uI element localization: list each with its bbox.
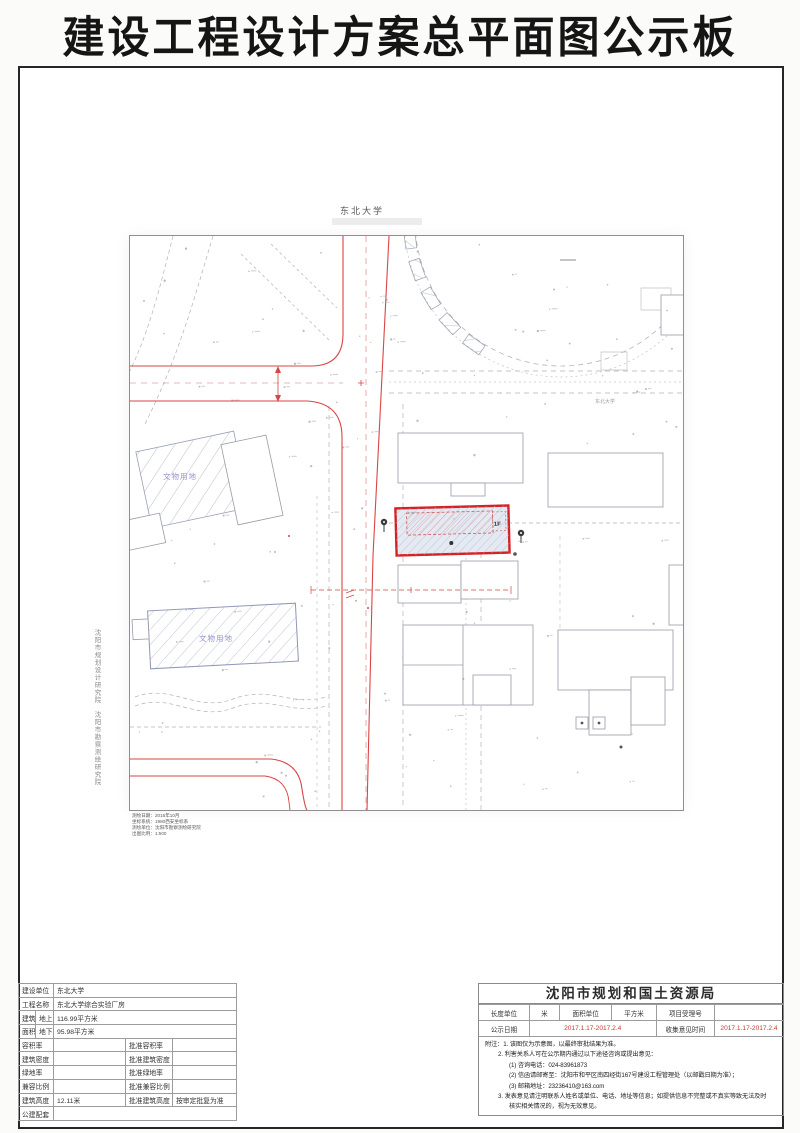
publicity-date-label-cell: 公示日期	[479, 1021, 529, 1037]
agency-panel: 沈阳市规划和国土资源局 长度单位 米 面积单位 平方米 项目受理号 公示日期 2…	[478, 983, 784, 1116]
above-ground-label-cell: 地上	[36, 1011, 54, 1025]
mix-approved-label-cell: 批准兼容比例	[126, 1079, 173, 1093]
far-approved-label-cell: 批准容积率	[126, 1038, 173, 1052]
project-value-cell: 东北大学综合实验厂房	[54, 997, 237, 1011]
collect-time-value-cell: 2017.1.17-2017.2.4	[715, 1021, 783, 1037]
table-row: 公建配套	[19, 1107, 237, 1121]
density-value-cell	[54, 1052, 126, 1066]
case-number-label-cell: 项目受理号	[656, 1005, 714, 1021]
table-row: 长度单位 米 面积单位 平方米 项目受理号	[479, 1005, 783, 1021]
density-label-cell: 建筑密度	[19, 1052, 54, 1066]
height-approved-value-cell: 按审定批复为准	[173, 1093, 237, 1107]
note-line: (2) 信函请邮寄至：沈阳市和平区南四经街167号建设工程管理处（以邮戳日期为准…	[485, 1071, 778, 1081]
area-unit-label-cell: 面积单位	[560, 1005, 612, 1021]
note-line: 附注：1. 该图仅为示意图，以最终审批结果为准。	[485, 1040, 778, 1050]
length-unit-label-cell: 长度单位	[479, 1005, 529, 1021]
agency-name: 沈阳市规划和国土资源局	[479, 984, 783, 1004]
far-label-cell: 容积率	[19, 1038, 54, 1052]
note-line: 3. 发表意见请注明联系人姓名或单位、电话、地址等信息；如提供信息不完整或不真实…	[485, 1092, 778, 1102]
note-line: 核实相关情况的，视为无效意见。	[485, 1102, 778, 1112]
public-facilities-label-cell: 公建配套	[19, 1107, 54, 1121]
length-unit-value-cell: 米	[529, 1005, 559, 1021]
far-value-cell	[54, 1038, 126, 1052]
project-label-cell: 工程名称	[19, 997, 54, 1011]
table-row: 建筑 地上 116.99平方米	[19, 1011, 237, 1025]
notice-board-page: 建设工程设计方案总平面图公示板 东北大学	[0, 0, 800, 1133]
below-ground-value-cell: 95.98平方米	[54, 1025, 237, 1039]
heritage-land-label-2: 文物用地	[199, 633, 233, 643]
table-row: 建设单位 东北大学	[19, 984, 237, 998]
map-meta-line: 出图比例：1:500	[132, 831, 282, 837]
public-facilities-value-cell	[54, 1107, 237, 1121]
table-row: 建筑高度 12.11米 批准建筑高度 按审定批复为准	[19, 1093, 237, 1107]
green-label-cell: 绿地率	[19, 1066, 54, 1080]
mix-approved-value-cell	[173, 1079, 237, 1093]
heritage-land-label-1: 文物用地	[163, 471, 197, 481]
site-plan-svg: 1F 文物用地 文物用地 东北大学	[130, 236, 683, 810]
tiny-text-speck	[560, 259, 576, 261]
note-line: 2. 利害关系人可在公示期内通过以下途径咨询或提出意见：	[485, 1050, 778, 1060]
stadium-arc	[403, 236, 683, 377]
table-row: 建筑密度 批准建筑密度	[19, 1052, 237, 1066]
table-row: 兼容比例 批准兼容比例	[19, 1079, 237, 1093]
note-line: (3) 邮箱地址：23236410@163.com	[485, 1082, 778, 1092]
map-metadata-block: 测绘日期：2016年10月 坐标系统：1980西安坐标系 测绘单位：沈阳市勘察测…	[132, 813, 282, 837]
project-info-table: 建设单位 东北大学 工程名称 东北大学综合实验厂房 建筑 地上 116.99平方…	[18, 983, 237, 1121]
density-approved-label-cell: 批准建筑密度	[126, 1052, 173, 1066]
area-label-top-cell: 建筑	[19, 1011, 36, 1025]
table-row: 工程名称 东北大学综合实验厂房	[19, 997, 237, 1011]
scan-artifact-strip	[332, 218, 422, 225]
publicity-date-value-cell: 2017.1.17-2017.2.4	[529, 1021, 656, 1037]
document-frame: 东北大学	[18, 66, 784, 1129]
campus-label: 东北大学	[340, 204, 384, 217]
table-row: 面积 地下 95.98平方米	[19, 1025, 237, 1039]
site-plan-map: 1F 文物用地 文物用地 东北大学	[129, 235, 684, 811]
agency-units-table: 长度单位 米 面积单位 平方米 项目受理号 公示日期 2017.1.17-201…	[479, 1004, 783, 1037]
green-approved-label-cell: 批准绿地率	[126, 1066, 173, 1080]
above-ground-value-cell: 116.99平方米	[54, 1011, 237, 1025]
case-number-value-cell	[715, 1005, 783, 1021]
height-value-cell: 12.11米	[54, 1093, 126, 1107]
height-approved-label-cell: 批准建筑高度	[126, 1093, 173, 1107]
note-line: (1) 咨询电话：024-83961873	[485, 1061, 778, 1071]
area-label-bottom-cell: 面积	[19, 1025, 36, 1039]
green-approved-value-cell	[173, 1066, 237, 1080]
table-row: 绿地率 批准绿地率	[19, 1066, 237, 1080]
side-credit-planning-institute: 沈阳市规划设计研究院	[91, 629, 101, 704]
project-parcel: 1F	[395, 506, 509, 556]
side-credit-survey-institute: 沈阳市勘察测绘研究院	[91, 711, 101, 786]
unit-value-cell: 东北大学	[54, 984, 237, 998]
below-ground-label-cell: 地下	[36, 1025, 54, 1039]
page-title: 建设工程设计方案总平面图公示板	[0, 3, 800, 66]
mix-label-cell: 兼容比例	[19, 1079, 54, 1093]
agency-notes: 附注：1. 该图仅为示意图，以最终审批结果为准。 2. 利害关系人可在公示期内通…	[479, 1037, 783, 1113]
area-unit-value-cell: 平方米	[612, 1005, 656, 1021]
table-row: 公示日期 2017.1.17-2017.2.4 收集意见时间 2017.1.17…	[479, 1021, 783, 1037]
campus-label-small: 东北大学	[595, 398, 615, 405]
green-value-cell	[54, 1066, 126, 1080]
table-row: 容积率 批准容积率	[19, 1038, 237, 1052]
density-approved-value-cell	[173, 1052, 237, 1066]
collect-time-label-cell: 收集意见时间	[656, 1021, 714, 1037]
unit-label-cell: 建设单位	[19, 984, 54, 998]
far-approved-value-cell	[173, 1038, 237, 1052]
mix-value-cell	[54, 1079, 126, 1093]
floor-label: 1F	[494, 522, 501, 528]
height-label-cell: 建筑高度	[19, 1093, 54, 1107]
